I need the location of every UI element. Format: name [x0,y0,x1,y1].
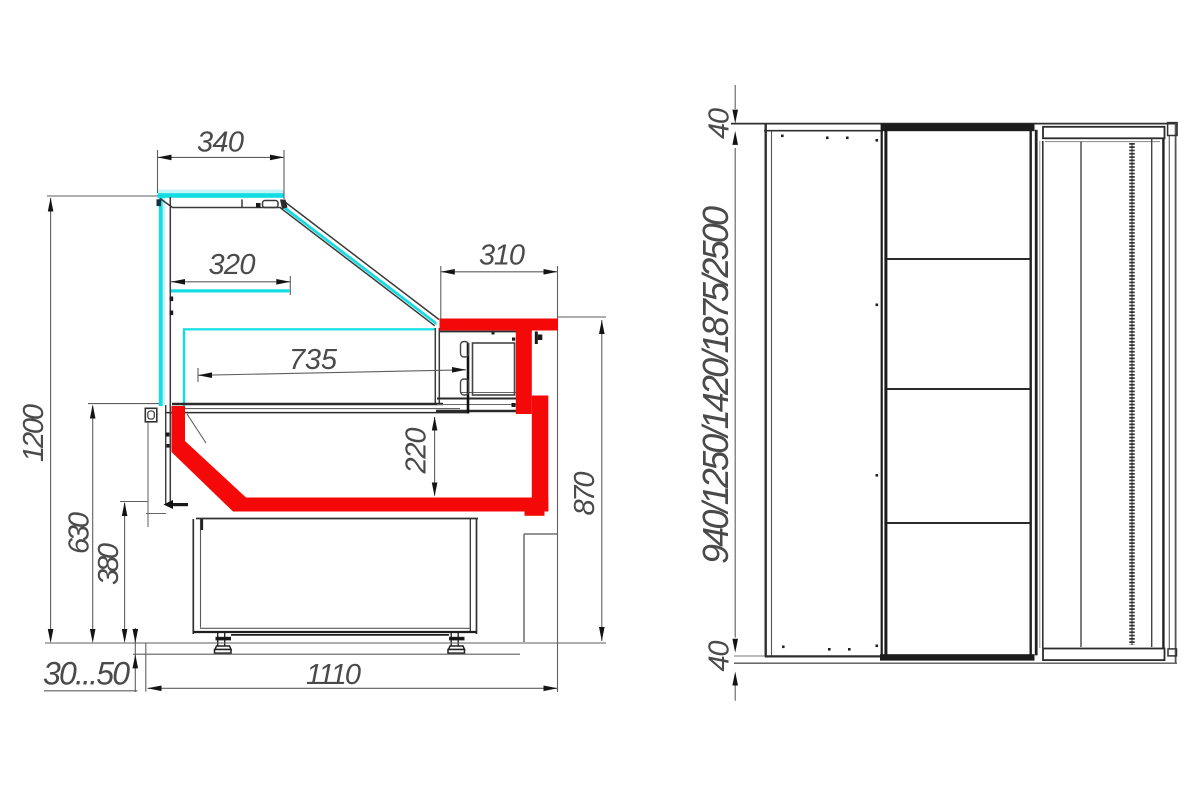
svg-text:40: 40 [704,641,736,672]
svg-text:340: 340 [197,127,244,159]
svg-text:1200: 1200 [18,404,50,462]
svg-text:320: 320 [209,249,256,281]
svg-text:310: 310 [479,240,525,272]
svg-text:40: 40 [704,108,736,139]
svg-text:940/1250/1420/1875/2500: 940/1250/1420/1875/2500 [695,206,736,564]
svg-text:220: 220 [401,428,433,475]
svg-text:870: 870 [569,472,601,516]
svg-text:1110: 1110 [306,659,361,691]
svg-text:630: 630 [64,512,96,554]
svg-text:30...50: 30...50 [43,656,130,692]
svg-text:380: 380 [93,543,125,585]
svg-text:735: 735 [289,344,338,376]
